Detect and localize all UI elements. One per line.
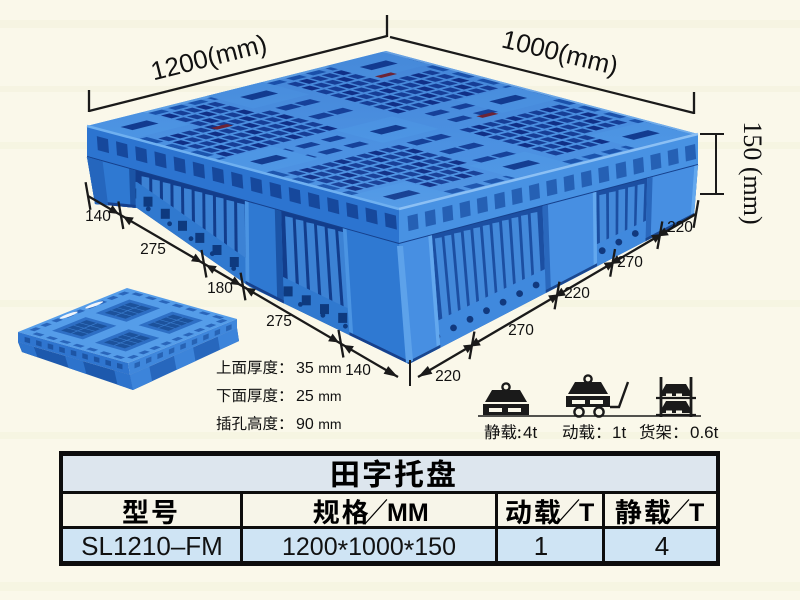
svg-text:35 mm: 35 mm [296, 360, 342, 377]
svg-text:270: 270 [508, 322, 534, 339]
svg-text:220: 220 [564, 285, 590, 302]
svg-text:25 mm: 25 mm [296, 388, 342, 405]
svg-text:0.6t: 0.6t [690, 423, 719, 442]
svg-text:T: T [689, 499, 704, 527]
svg-text:180: 180 [207, 280, 233, 297]
svg-text:SL1210–FM: SL1210–FM [81, 531, 223, 561]
svg-text:220: 220 [667, 219, 693, 236]
svg-text:T: T [579, 499, 594, 527]
svg-text:140: 140 [85, 208, 111, 225]
svg-text:140: 140 [345, 362, 371, 379]
svg-text:150 (mm): 150 (mm) [738, 121, 767, 224]
svg-text:90 mm: 90 mm [296, 416, 342, 433]
svg-text:4: 4 [655, 531, 669, 561]
svg-text:1t: 1t [612, 423, 626, 442]
svg-text:1200*1000*150: 1200*1000*150 [282, 533, 456, 565]
svg-text:275: 275 [140, 241, 166, 258]
svg-text:275: 275 [266, 313, 292, 330]
svg-text:270: 270 [617, 254, 643, 271]
svg-text:1: 1 [534, 531, 548, 561]
svg-text:220: 220 [435, 368, 461, 385]
svg-text:4t: 4t [523, 423, 537, 442]
svg-text:MM: MM [387, 499, 429, 527]
